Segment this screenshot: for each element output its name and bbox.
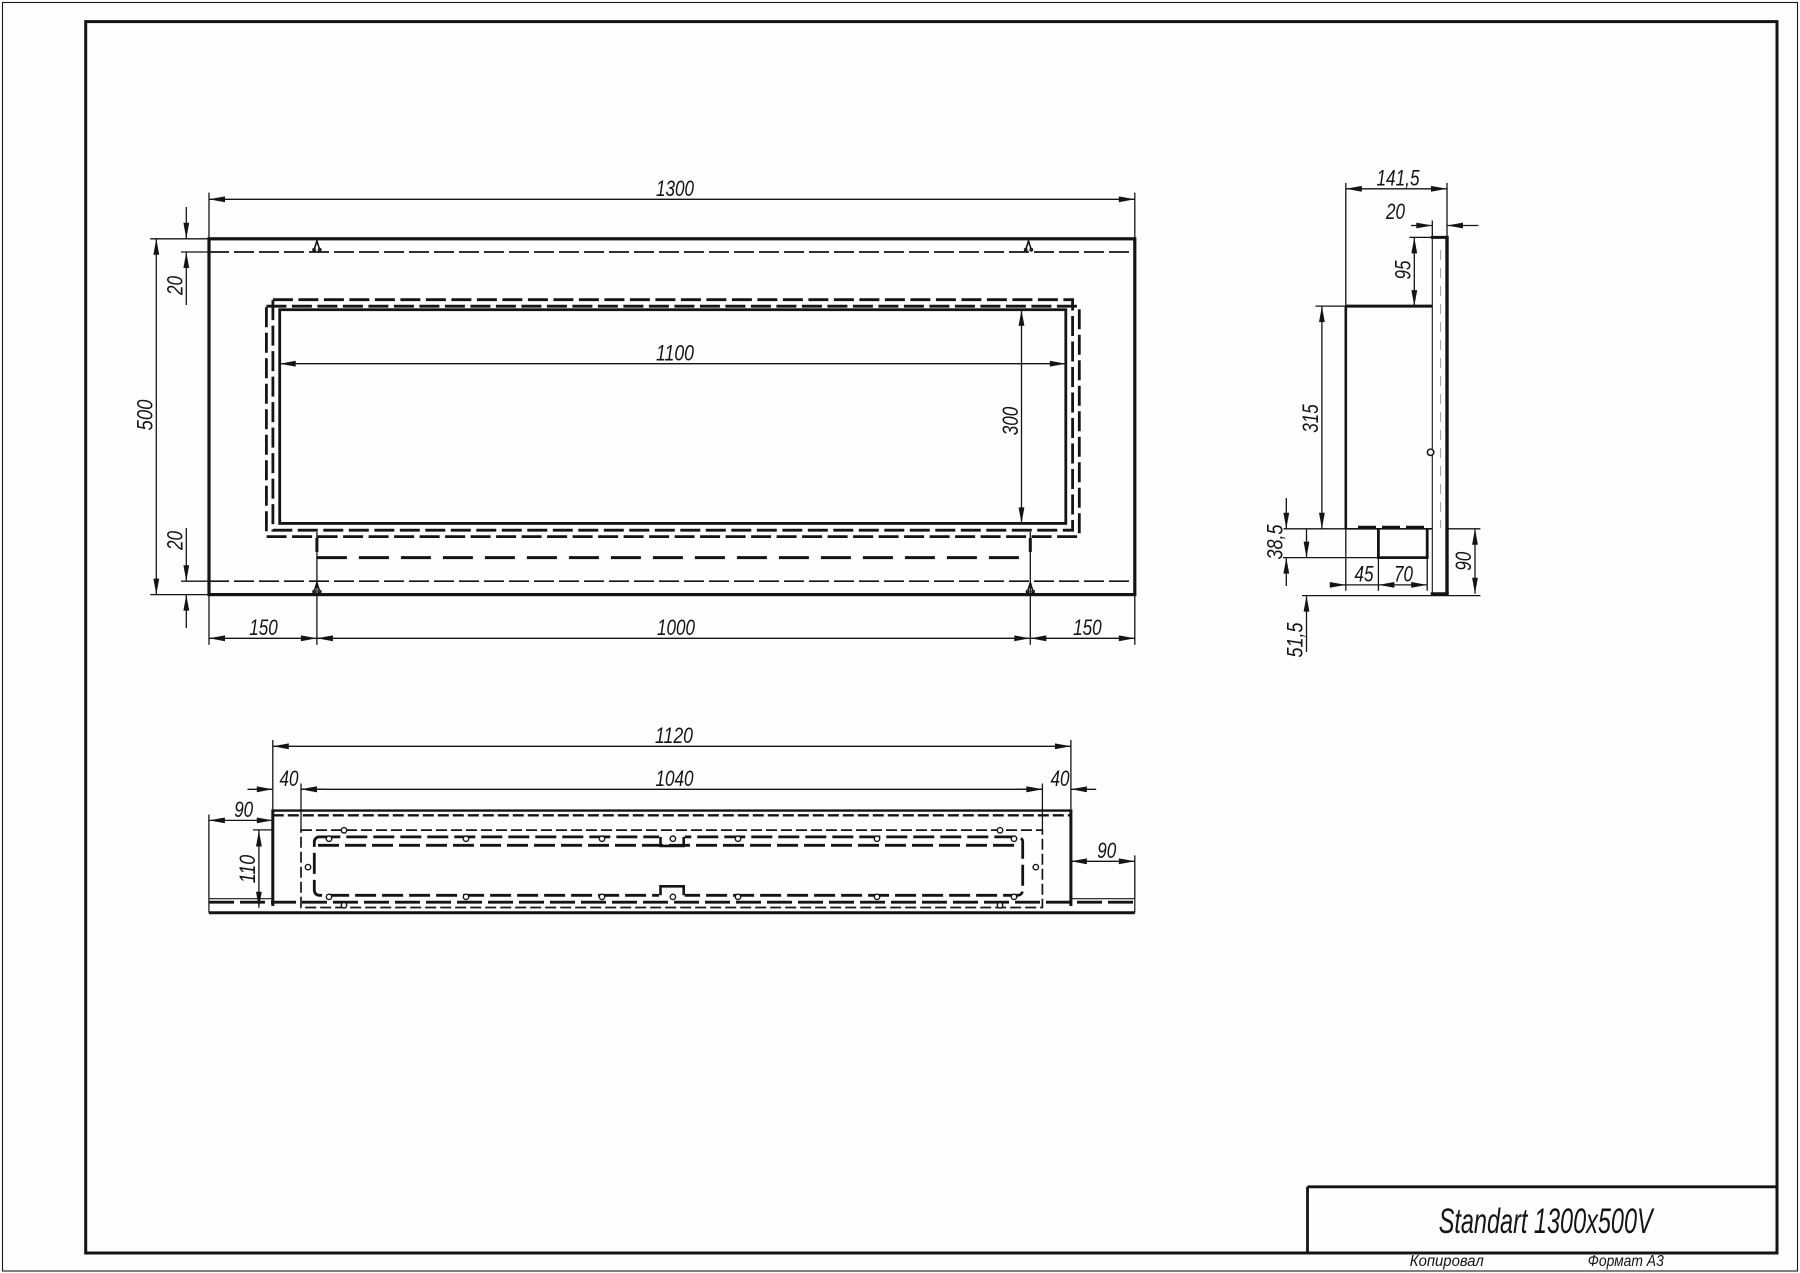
svg-text:40: 40 — [1051, 766, 1071, 791]
svg-text:51,5: 51,5 — [1283, 622, 1308, 658]
svg-text:20: 20 — [163, 275, 188, 295]
svg-text:Standart 1300x500V: Standart 1300x500V — [1439, 1202, 1655, 1241]
svg-text:90: 90 — [234, 797, 254, 822]
svg-text:Формат А3: Формат А3 — [1588, 1253, 1664, 1270]
svg-text:20: 20 — [163, 530, 188, 550]
svg-text:95: 95 — [1390, 260, 1415, 280]
svg-text:1040: 1040 — [656, 766, 695, 791]
svg-text:300: 300 — [998, 406, 1023, 435]
svg-text:1100: 1100 — [656, 340, 695, 365]
svg-text:20: 20 — [1385, 199, 1405, 224]
svg-text:315: 315 — [1298, 404, 1323, 433]
svg-text:110: 110 — [235, 854, 260, 883]
svg-text:45: 45 — [1355, 562, 1375, 587]
svg-text:141,5: 141,5 — [1377, 166, 1421, 191]
svg-text:500: 500 — [132, 399, 157, 431]
svg-text:150: 150 — [249, 615, 278, 640]
svg-text:1000: 1000 — [657, 615, 696, 640]
svg-text:1120: 1120 — [655, 723, 694, 748]
svg-text:90: 90 — [1097, 838, 1117, 863]
svg-text:40: 40 — [280, 766, 300, 791]
svg-text:38,5: 38,5 — [1262, 524, 1287, 560]
svg-text:150: 150 — [1073, 615, 1102, 640]
svg-text:Копировал: Копировал — [1410, 1253, 1484, 1270]
svg-text:70: 70 — [1394, 562, 1414, 587]
svg-text:90: 90 — [1451, 551, 1476, 571]
svg-text:1300: 1300 — [656, 176, 695, 201]
